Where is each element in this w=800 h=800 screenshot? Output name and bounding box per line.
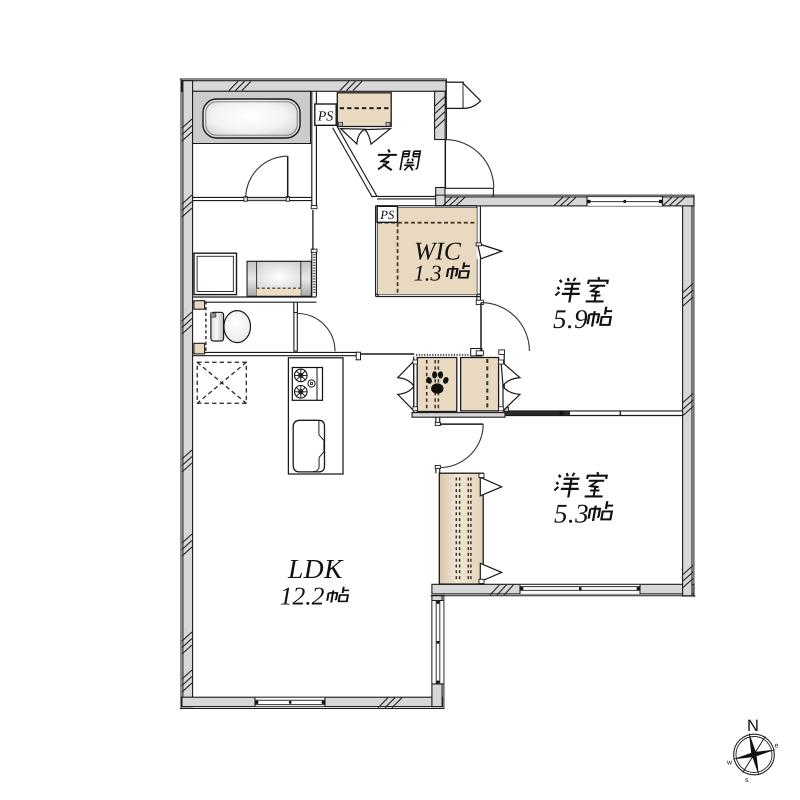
svg-text:w: w — [726, 760, 733, 767]
svg-text:LDK: LDK — [287, 553, 344, 584]
svg-text:e: e — [775, 743, 779, 750]
svg-text:5.3: 5.3 — [554, 499, 589, 529]
svg-text:1.3: 1.3 — [413, 261, 441, 286]
svg-text:12.2: 12.2 — [280, 582, 325, 611]
svg-text:5.9: 5.9 — [553, 304, 588, 334]
svg-text:s: s — [745, 777, 749, 784]
svg-text:PS: PS — [379, 208, 395, 222]
svg-text:PS: PS — [317, 109, 334, 124]
svg-text:N: N — [747, 717, 759, 735]
